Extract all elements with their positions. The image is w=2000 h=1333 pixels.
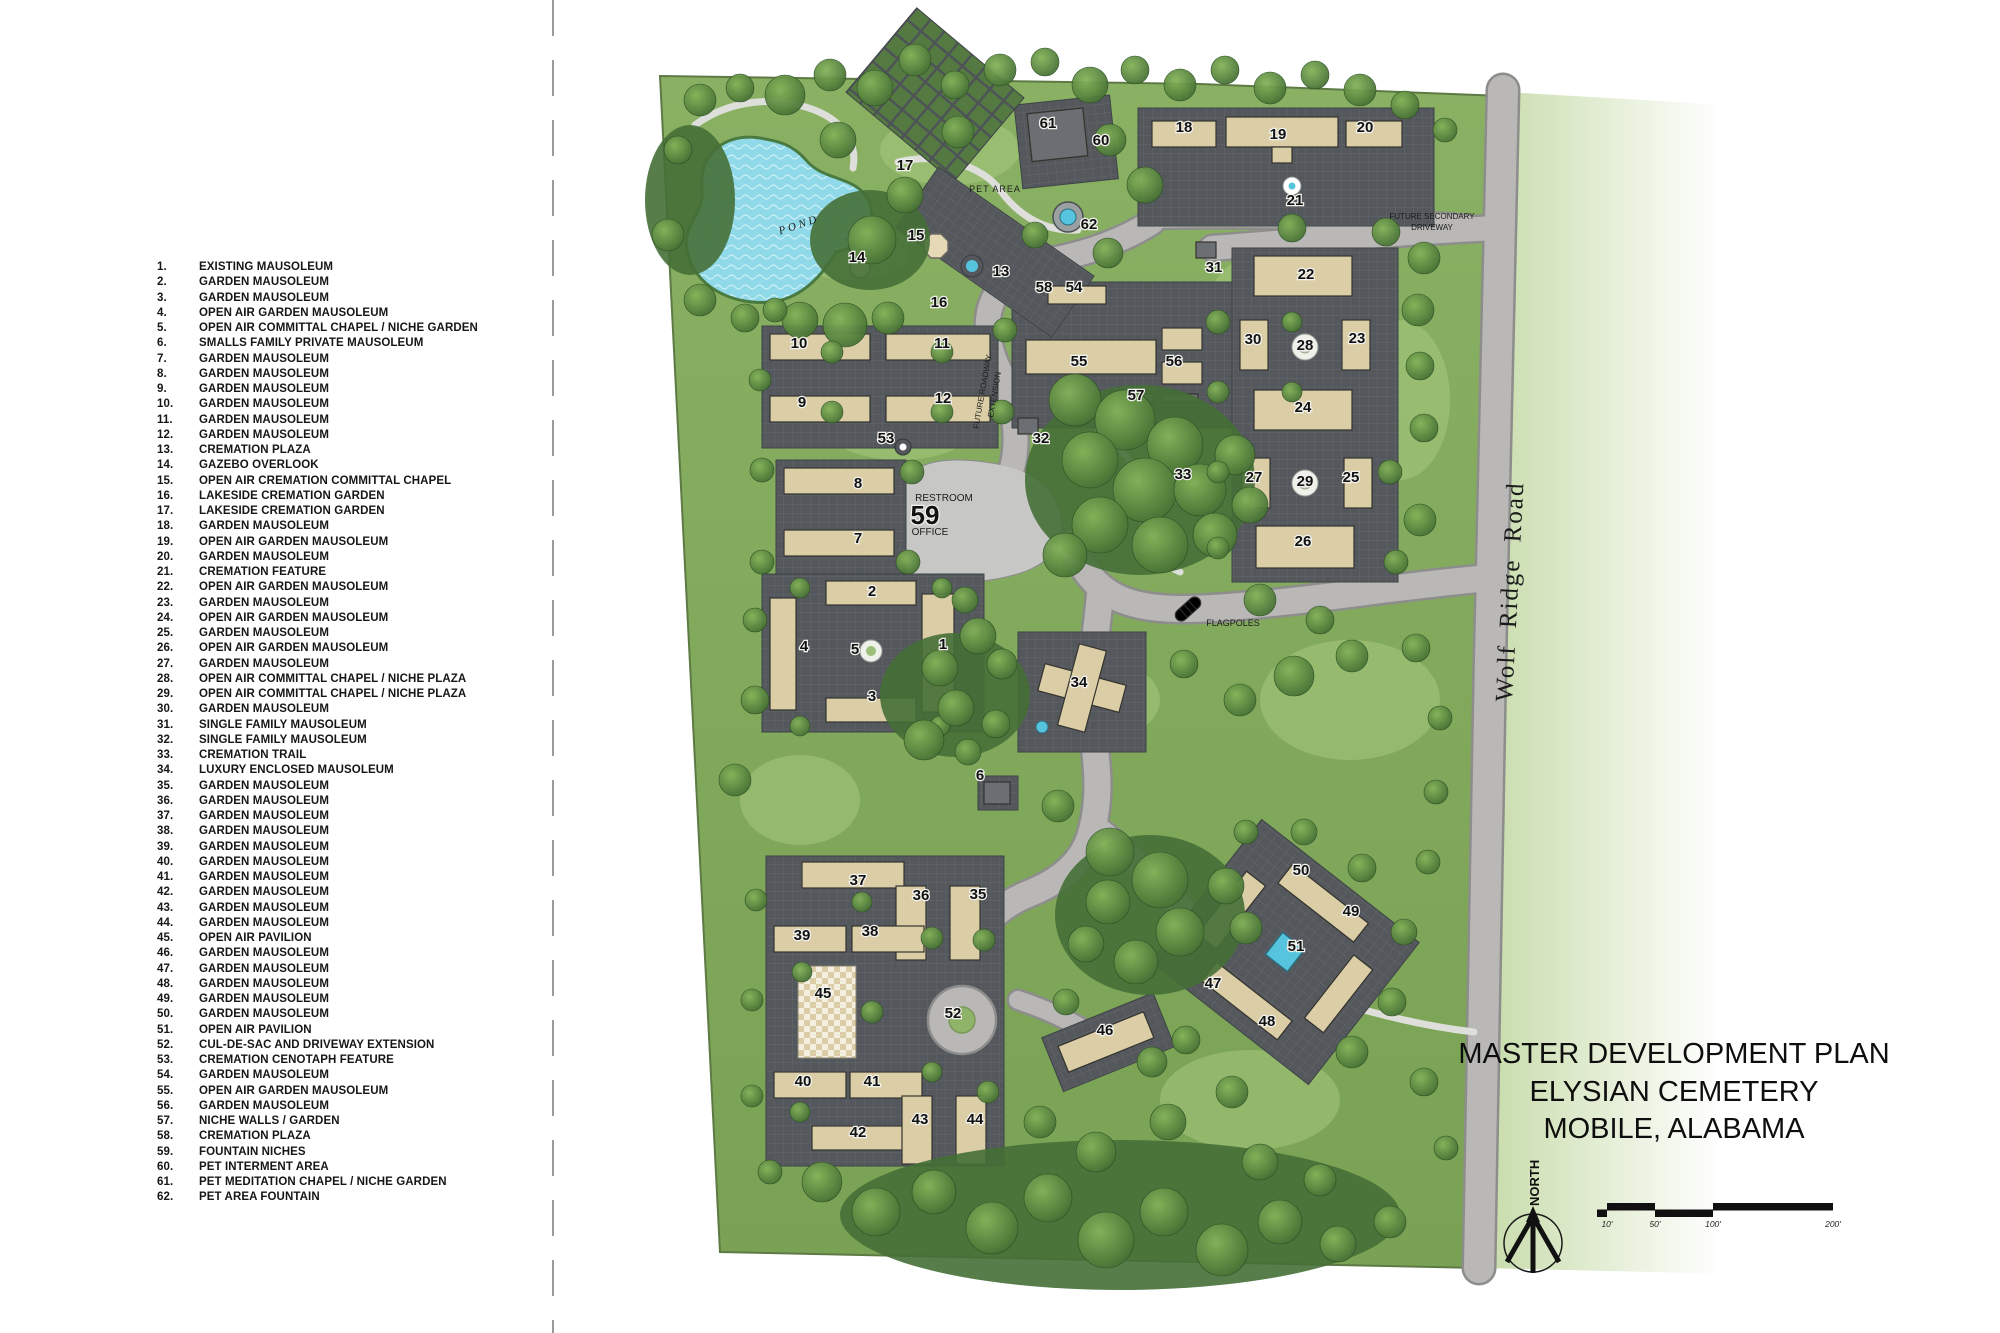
legend-item-number: 53.	[157, 1053, 199, 1068]
tree	[765, 75, 805, 115]
site-feature	[900, 444, 907, 451]
map-number-label: 19	[1270, 126, 1287, 143]
legend-item-label: OPEN AIR GARDEN MAUSOLEUM	[199, 641, 557, 656]
legend-item-number: 6.	[157, 336, 199, 351]
legend-item: 24.OPEN AIR GARDEN MAUSOLEUM	[157, 611, 557, 626]
tree	[852, 892, 872, 912]
legend-item-label: GARDEN MAUSOLEUM	[199, 702, 557, 717]
legend-item-number: 43.	[157, 901, 199, 916]
map-number-label: 12	[935, 390, 952, 407]
tree	[1291, 819, 1317, 845]
legend-item-label: CREMATION TRAIL	[199, 748, 557, 763]
legend-item: 29.OPEN AIR COMMITTAL CHAPEL / NICHE PLA…	[157, 687, 557, 702]
legend-item-label: GARDEN MAUSOLEUM	[199, 352, 557, 367]
map-number-label: 16	[931, 294, 948, 311]
tree	[955, 739, 981, 765]
legend-item: 32.SINGLE FAMILY MAUSOLEUM	[157, 733, 557, 748]
legend-item-label: GARDEN MAUSOLEUM	[199, 626, 557, 641]
legend-item: 46.GARDEN MAUSOLEUM	[157, 946, 557, 961]
legend-item: 31.SINGLE FAMILY MAUSOLEUM	[157, 718, 557, 733]
tree	[1372, 218, 1400, 246]
map-number-label: 10	[791, 335, 808, 352]
legend-item-label: GARDEN MAUSOLEUM	[199, 885, 557, 900]
legend-item-label: GARDEN MAUSOLEUM	[199, 1099, 557, 1114]
tree	[741, 989, 763, 1011]
legend-item: 51.OPEN AIR PAVILION	[157, 1023, 557, 1038]
site-feature	[866, 646, 876, 656]
legend-item: 52.CUL-DE-SAC AND DRIVEWAY EXTENSION	[157, 1038, 557, 1053]
tree	[1076, 1132, 1116, 1172]
legend-item-number: 49.	[157, 992, 199, 1007]
legend-item-number: 18.	[157, 519, 199, 534]
tree	[1078, 1212, 1134, 1268]
legend-item-number: 48.	[157, 977, 199, 992]
legend-item-label: OPEN AIR GARDEN MAUSOLEUM	[199, 580, 557, 595]
legend-item-label: GARDEN MAUSOLEUM	[199, 946, 557, 961]
tree	[1410, 414, 1438, 442]
map-number-label: 54	[1066, 279, 1083, 296]
tree	[814, 59, 846, 91]
tree	[942, 116, 974, 148]
site-feature	[1060, 209, 1076, 225]
tree	[792, 962, 812, 982]
legend-item-number: 11.	[157, 413, 199, 428]
tree	[1304, 1164, 1336, 1196]
tree	[1402, 294, 1434, 326]
tree	[1086, 828, 1134, 876]
map-number-label: 57	[1128, 387, 1145, 404]
map-number-label: 27	[1246, 469, 1263, 486]
tree	[1207, 381, 1229, 403]
site-feature	[1289, 183, 1296, 190]
legend-item: 33.CREMATION TRAIL	[157, 748, 557, 763]
mausoleum-building	[770, 396, 870, 422]
legend-item-label: PET AREA FOUNTAIN	[199, 1190, 557, 1205]
tree	[749, 369, 771, 391]
tree	[872, 302, 904, 334]
map-number-label: 51	[1288, 938, 1305, 955]
tree	[1121, 56, 1149, 84]
legend-item: 15.OPEN AIR CREMATION COMMITTAL CHAPEL	[157, 474, 557, 489]
legend-item: 50.GARDEN MAUSOLEUM	[157, 1007, 557, 1022]
legend-item: 5.OPEN AIR COMMITTAL CHAPEL / NICHE GARD…	[157, 321, 557, 336]
legend-item-label: PET MEDITATION CHAPEL / NICHE GARDEN	[199, 1175, 557, 1190]
legend-item-number: 12.	[157, 428, 199, 443]
tree	[861, 1001, 883, 1023]
tree	[960, 618, 996, 654]
plan-subtitle-cemetery: ELYSIAN CEMETERY	[1452, 1074, 1896, 1112]
tree	[922, 1062, 942, 1082]
legend-item-label: GARDEN MAUSOLEUM	[199, 413, 557, 428]
map-number-label: 9	[798, 394, 806, 411]
legend-item-label: OPEN AIR COMMITTAL CHAPEL / NICHE PLAZA	[199, 672, 557, 687]
legend-item-number: 5.	[157, 321, 199, 336]
map-number-label: 44	[967, 1111, 984, 1128]
legend-item-label: OPEN AIR GARDEN MAUSOLEUM	[199, 306, 557, 321]
tree	[1043, 533, 1087, 577]
legend-item: 25.GARDEN MAUSOLEUM	[157, 626, 557, 641]
legend-item-label: GARDEN MAUSOLEUM	[199, 824, 557, 839]
legend-item-label: FOUNTAIN NICHES	[199, 1145, 557, 1160]
tree	[1416, 850, 1440, 874]
map-number-label: 43	[912, 1111, 929, 1128]
mausoleum-building	[1027, 108, 1088, 162]
map-number-label: 59	[911, 500, 940, 530]
tree	[1207, 461, 1229, 483]
legend-item-label: GARDEN MAUSOLEUM	[199, 596, 557, 611]
legend-item-label: NICHE WALLS / GARDEN	[199, 1114, 557, 1129]
tree	[1234, 820, 1258, 844]
tree	[977, 1081, 999, 1103]
tree	[982, 710, 1010, 738]
tree	[1022, 222, 1048, 248]
legend-item: 41.GARDEN MAUSOLEUM	[157, 870, 557, 885]
tree	[1278, 214, 1306, 242]
legend-item-number: 56.	[157, 1099, 199, 1114]
plan-subtitle-location: MOBILE, ALABAMA	[1452, 1111, 1896, 1149]
legend-item: 10.GARDEN MAUSOLEUM	[157, 397, 557, 412]
legend-item: 59.FOUNTAIN NICHES	[157, 1145, 557, 1160]
map-number-label: 7	[854, 530, 862, 547]
tree	[1336, 640, 1368, 672]
legend-item-number: 2.	[157, 275, 199, 290]
legend-item-number: 46.	[157, 946, 199, 961]
legend-item-label: OPEN AIR GARDEN MAUSOLEUM	[199, 611, 557, 626]
map-number-label: 60	[1093, 132, 1110, 149]
legend-item-label: CUL-DE-SAC AND DRIVEWAY EXTENSION	[199, 1038, 557, 1053]
legend-item-label: PET INTERMENT AREA	[199, 1160, 557, 1175]
legend-item-label: GARDEN MAUSOLEUM	[199, 367, 557, 382]
map-number-label: 61	[1040, 115, 1057, 132]
tree	[966, 1202, 1018, 1254]
tree	[1208, 868, 1244, 904]
map-number-label: 17	[897, 157, 914, 174]
tree	[973, 929, 995, 951]
tree	[1408, 242, 1440, 274]
map-number-label: 41	[864, 1073, 881, 1090]
scale-tick-label: 200'	[1824, 1219, 1841, 1229]
tree	[1170, 650, 1198, 678]
mausoleum-building	[984, 782, 1010, 804]
map-number-label: 33	[1175, 466, 1192, 483]
tree	[684, 284, 716, 316]
legend-item-number: 26.	[157, 641, 199, 656]
legend-item-number: 40.	[157, 855, 199, 870]
legend-item-number: 16.	[157, 489, 199, 504]
tree	[896, 550, 920, 574]
map-number-label: 4	[800, 638, 809, 655]
legend-item: 54.GARDEN MAUSOLEUM	[157, 1068, 557, 1083]
legend-item-number: 51.	[157, 1023, 199, 1038]
site-feature	[1036, 721, 1048, 733]
tree	[790, 1102, 810, 1122]
legend-item: 3.GARDEN MAUSOLEUM	[157, 291, 557, 306]
map-number-label: 23	[1349, 330, 1366, 347]
legend-item: 49.GARDEN MAUSOLEUM	[157, 992, 557, 1007]
mausoleum-building	[770, 598, 796, 710]
legend-item-label: GARDEN MAUSOLEUM	[199, 916, 557, 931]
legend-item: 6.SMALLS FAMILY PRIVATE MAUSOLEUM	[157, 336, 557, 351]
legend-item-number: 9.	[157, 382, 199, 397]
tree	[993, 318, 1017, 342]
map-number-label: 50	[1293, 862, 1310, 879]
legend-item: 16.LAKESIDE CREMATION GARDEN	[157, 489, 557, 504]
legend-item-number: 57.	[157, 1114, 199, 1129]
legend-item-label: SMALLS FAMILY PRIVATE MAUSOLEUM	[199, 336, 557, 351]
tree	[1053, 989, 1079, 1015]
legend-item: 14.GAZEBO OVERLOOK	[157, 458, 557, 473]
legend-item-label: GARDEN MAUSOLEUM	[199, 382, 557, 397]
legend-item: 61.PET MEDITATION CHAPEL / NICHE GARDEN	[157, 1175, 557, 1190]
mausoleum-building	[1162, 328, 1202, 350]
legend-item-number: 27.	[157, 657, 199, 672]
tree	[823, 303, 867, 347]
tree	[1031, 48, 1059, 76]
mausoleum-building	[1196, 242, 1216, 258]
tree	[652, 219, 684, 251]
map-number-label: 30	[1245, 331, 1262, 348]
legend-item-number: 38.	[157, 824, 199, 839]
tree	[726, 74, 754, 102]
legend-item-number: 1.	[157, 260, 199, 275]
legend-item-number: 20.	[157, 550, 199, 565]
tree	[852, 1188, 900, 1236]
map-label: DRIVEWAY	[1411, 223, 1453, 232]
legend-item: 55.OPEN AIR GARDEN MAUSOLEUM	[157, 1084, 557, 1099]
legend-item-number: 45.	[157, 931, 199, 946]
map-number-label: 8	[854, 475, 862, 492]
tree	[758, 1160, 782, 1184]
map-number-label: 40	[795, 1073, 812, 1090]
legend-item-number: 60.	[157, 1160, 199, 1175]
legend-item: 36.GARDEN MAUSOLEUM	[157, 794, 557, 809]
legend-item-label: GARDEN MAUSOLEUM	[199, 291, 557, 306]
tree	[857, 70, 893, 106]
legend-item-number: 31.	[157, 718, 199, 733]
tree	[1024, 1174, 1072, 1222]
map-number-label: 28	[1297, 337, 1314, 354]
legend-item-number: 22.	[157, 580, 199, 595]
tree	[1230, 912, 1262, 944]
legend-item-label: SINGLE FAMILY MAUSOLEUM	[199, 718, 557, 733]
map-number-label: 11	[934, 335, 950, 352]
legend-item-number: 55.	[157, 1084, 199, 1099]
legend-item-label: SINGLE FAMILY MAUSOLEUM	[199, 733, 557, 748]
tree	[820, 122, 856, 158]
north-label: NORTH	[1527, 1160, 1542, 1206]
tree	[684, 84, 716, 116]
map-number-label: 13	[993, 263, 1010, 280]
map-number-label: 18	[1176, 119, 1193, 136]
tree	[1348, 854, 1376, 882]
legend-item: 53.CREMATION CENOTAPH FEATURE	[157, 1053, 557, 1068]
tree	[922, 650, 958, 686]
legend-item: 20.GARDEN MAUSOLEUM	[157, 550, 557, 565]
legend-item: 22.OPEN AIR GARDEN MAUSOLEUM	[157, 580, 557, 595]
tree	[782, 302, 818, 338]
tree	[1378, 460, 1402, 484]
tree	[1336, 1036, 1368, 1068]
legend-item: 60.PET INTERMENT AREA	[157, 1160, 557, 1175]
tree	[1384, 550, 1408, 574]
legend-item-label: CREMATION FEATURE	[199, 565, 557, 580]
legend-item: 4.OPEN AIR GARDEN MAUSOLEUM	[157, 306, 557, 321]
legend-item-label: GARDEN MAUSOLEUM	[199, 901, 557, 916]
tree	[763, 298, 787, 322]
tree	[745, 889, 767, 911]
plan-sheet: PONDPET AREAFUTURE SECONDARYDRIVEWAYFUTU…	[0, 0, 2000, 1333]
map-number-label: 35	[970, 886, 987, 903]
mausoleum-building	[784, 468, 894, 494]
legend-item-number: 36.	[157, 794, 199, 809]
scale-tick-label: 50'	[1649, 1219, 1660, 1229]
plan-title: MASTER DEVELOPMENT PLAN	[1452, 1036, 1896, 1074]
legend-item-number: 39.	[157, 840, 199, 855]
tree	[1242, 1144, 1278, 1180]
mausoleum-building	[1272, 147, 1292, 163]
legend-item: 35.GARDEN MAUSOLEUM	[157, 779, 557, 794]
tree	[1172, 1026, 1200, 1054]
legend-item-number: 30.	[157, 702, 199, 717]
map-number-label: 47	[1205, 975, 1222, 992]
legend-item-number: 58.	[157, 1129, 199, 1144]
map-number-label: 14	[849, 249, 866, 266]
tree	[1086, 880, 1130, 924]
tree	[1137, 1047, 1167, 1077]
legend-item-number: 14.	[157, 458, 199, 473]
map-label: FUTURE SECONDARY	[1389, 212, 1475, 221]
legend-item-number: 41.	[157, 870, 199, 885]
tree	[1344, 74, 1376, 106]
tree	[1132, 517, 1188, 573]
legend-item-number: 35.	[157, 779, 199, 794]
map-number-label: 36	[913, 887, 930, 904]
legend-item: 38.GARDEN MAUSOLEUM	[157, 824, 557, 839]
legend-item-number: 47.	[157, 962, 199, 977]
legend-item-label: CREMATION PLAZA	[199, 443, 557, 458]
legend-item-number: 8.	[157, 367, 199, 382]
legend-item-number: 23.	[157, 596, 199, 611]
legend-item-number: 25.	[157, 626, 199, 641]
legend-item-number: 10.	[157, 397, 199, 412]
tree	[912, 1170, 956, 1214]
legend-item: 26.OPEN AIR GARDEN MAUSOLEUM	[157, 641, 557, 656]
mausoleum-building	[1026, 340, 1156, 374]
legend-item: 12.GARDEN MAUSOLEUM	[157, 428, 557, 443]
tree	[1072, 67, 1108, 103]
tree	[1024, 1106, 1056, 1138]
legend-item-label: GARDEN MAUSOLEUM	[199, 840, 557, 855]
map-label: PET AREA	[969, 184, 1021, 194]
legend-item-label: GARDEN MAUSOLEUM	[199, 1007, 557, 1022]
tree	[719, 764, 751, 796]
legend-item-label: GARDEN MAUSOLEUM	[199, 1068, 557, 1083]
map-number-label: 38	[862, 923, 879, 940]
legend-item-number: 13.	[157, 443, 199, 458]
map-number-label: 45	[815, 985, 832, 1002]
tree	[1301, 61, 1329, 89]
legend-item: 34.LUXURY ENCLOSED MAUSOLEUM	[157, 763, 557, 778]
legend-item-label: CREMATION CENOTAPH FEATURE	[199, 1053, 557, 1068]
legend-item-label: OPEN AIR PAVILION	[199, 1023, 557, 1038]
legend-item: 47.GARDEN MAUSOLEUM	[157, 962, 557, 977]
tree	[1207, 537, 1229, 559]
tree	[1306, 606, 1334, 634]
lawn-patch	[740, 755, 860, 845]
tree	[1391, 91, 1419, 119]
map-label: FLAGPOLES	[1206, 618, 1260, 628]
tree	[1140, 1188, 1188, 1236]
tree	[1410, 1068, 1438, 1096]
legend-item-label: GARDEN MAUSOLEUM	[199, 428, 557, 443]
legend-item-number: 50.	[157, 1007, 199, 1022]
mausoleum-building	[1346, 121, 1402, 147]
legend-item: 62.PET AREA FOUNTAIN	[157, 1190, 557, 1205]
tree	[741, 686, 769, 714]
map-number-label: 5	[851, 641, 859, 658]
legend-item-label: GARDEN MAUSOLEUM	[199, 794, 557, 809]
legend-item-label: OPEN AIR COMMITTAL CHAPEL / NICHE GARDEN	[199, 321, 557, 336]
tree	[987, 649, 1017, 679]
tree-mass	[840, 1140, 1400, 1290]
legend-item: 18.GARDEN MAUSOLEUM	[157, 519, 557, 534]
map-number-label: 3	[868, 688, 876, 705]
mausoleum-building	[902, 1096, 932, 1164]
legend-item: 19.OPEN AIR GARDEN MAUSOLEUM	[157, 535, 557, 550]
tree	[1042, 790, 1074, 822]
legend-item: 17.LAKESIDE CREMATION GARDEN	[157, 504, 557, 519]
legend-item-number: 21.	[157, 565, 199, 580]
legend-item: 58.CREMATION PLAZA	[157, 1129, 557, 1144]
tree	[904, 720, 944, 760]
tree	[941, 71, 969, 99]
scale-tick-label: 10'	[1601, 1219, 1612, 1229]
legend-item-number: 52.	[157, 1038, 199, 1053]
legend-item-label: OPEN AIR GARDEN MAUSOLEUM	[199, 535, 557, 550]
tree	[1320, 1226, 1356, 1262]
map-number-label: 62	[1081, 216, 1098, 233]
map-number-label: 34	[1071, 674, 1088, 691]
map-number-label: 37	[850, 872, 867, 889]
legend-item-number: 3.	[157, 291, 199, 306]
tree	[1132, 852, 1188, 908]
map-number-label: 20	[1357, 119, 1374, 136]
tree	[1433, 118, 1457, 142]
tree	[790, 716, 810, 736]
map-number-label: 21	[1287, 192, 1304, 209]
tree	[984, 54, 1016, 86]
tree	[1062, 432, 1118, 488]
tree	[1196, 1224, 1248, 1276]
map-number-label: 31	[1206, 259, 1223, 276]
tree	[1406, 352, 1434, 380]
legend-item-number: 37.	[157, 809, 199, 824]
tree	[1216, 1076, 1248, 1108]
legend-item-number: 32.	[157, 733, 199, 748]
tree	[1391, 919, 1417, 945]
tree	[1424, 780, 1448, 804]
tree	[741, 1085, 763, 1107]
map-number-label: 24	[1295, 399, 1312, 416]
legend-item-label: LAKESIDE CREMATION GARDEN	[199, 489, 557, 504]
legend-item: 44.GARDEN MAUSOLEUM	[157, 916, 557, 931]
legend-item: 30.GARDEN MAUSOLEUM	[157, 702, 557, 717]
tree	[1164, 69, 1196, 101]
tree	[932, 578, 952, 598]
map-number-label: 58	[1036, 279, 1053, 296]
tree	[938, 690, 974, 726]
legend-item: 23.GARDEN MAUSOLEUM	[157, 596, 557, 611]
